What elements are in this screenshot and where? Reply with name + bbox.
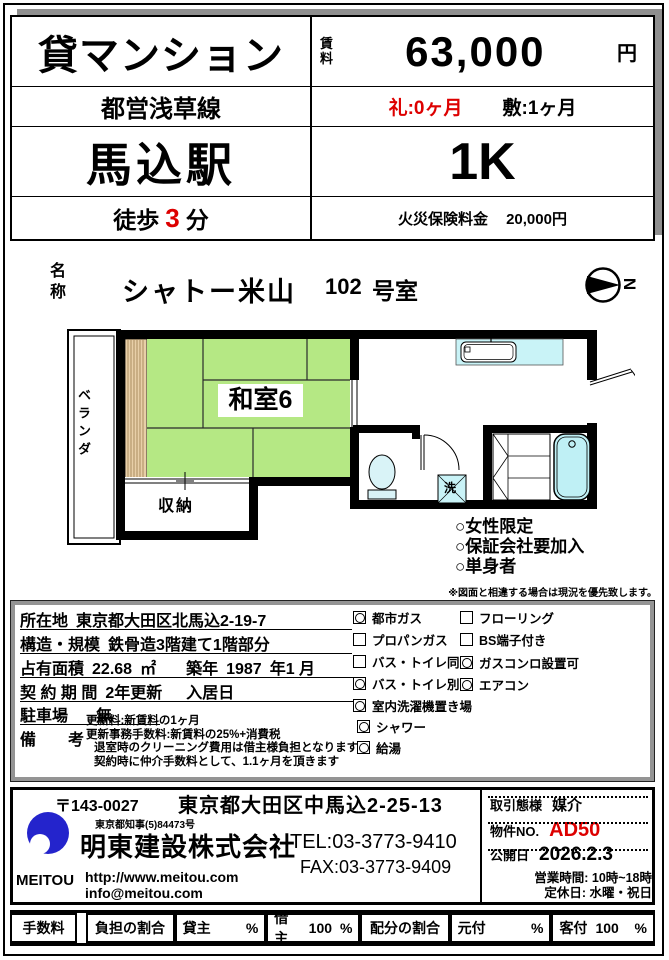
allocation-ratio-cell: 配分の割合: [360, 913, 449, 943]
checkbox[interactable]: [460, 611, 473, 624]
feature-hot-water: 給湯: [357, 738, 401, 757]
checkbox[interactable]: [353, 611, 366, 624]
address-row: 所在地 東京都大田区北馬込2-19-7: [20, 607, 352, 630]
built-year: 1987: [218, 661, 262, 679]
fee-cell: 手数料: [10, 913, 77, 943]
area-label: 占有面積: [20, 655, 84, 679]
listing-label: 元付: [458, 918, 486, 938]
key-money: 礼:0ヶ月: [389, 93, 463, 120]
header-box: 貸マンション 都営浅草線 馬込駅 徒歩 3 分 賃料 63,000 円 礼:0ヶ…: [10, 15, 655, 241]
note-guarantor: ○保証会社要加入: [455, 537, 584, 557]
company-logo: [24, 812, 70, 862]
company-box-divider: [480, 787, 482, 905]
tenant-label: 借主: [274, 908, 300, 948]
walk-minutes: 3: [159, 203, 185, 234]
remarks-label: 備 考: [20, 726, 84, 750]
built-label: 築年: [186, 655, 218, 679]
address-label: 所在地: [20, 607, 68, 631]
closet-label: 収納: [158, 492, 194, 516]
company-tel[interactable]: TEL:03-3773-9410: [290, 831, 457, 854]
dotted-divider: [488, 822, 648, 824]
company-name: 明東建設株式会社: [80, 827, 296, 864]
tenant-value: 100: [301, 920, 340, 936]
deposit-row: 礼:0ヶ月 敷:1ヶ月: [312, 87, 653, 127]
plan-disclaimer: ※図面と相違する場合は現況を優先致します。: [375, 584, 657, 599]
remark-line: 更新料:新賃料の1ヶ月: [86, 715, 358, 729]
percent-sign: %: [635, 920, 647, 936]
checkbox[interactable]: [460, 633, 473, 646]
company-fax: FAX:03-3773-9409: [300, 857, 451, 878]
landlord-cell: 貸主 %: [175, 913, 267, 943]
logo-text: MEITOU: [16, 872, 74, 889]
area-value: 22.68: [84, 661, 132, 679]
fire-insurance-value: 20,000円: [506, 208, 567, 229]
area-built-row: 占有面積 22.68 ㎡ 築年 1987 年1 月: [20, 655, 360, 678]
property-type-title: 貸マンション: [12, 17, 310, 87]
business-hours: 営業時間: 10時~18時 定休日: 水曜・祝日: [486, 871, 652, 901]
rent-label: 賃料: [320, 37, 334, 67]
remark-line: 更新事務手数料:新賃料の25%+消費税: [86, 729, 358, 743]
dotted-divider: [488, 796, 648, 798]
business-hours-value: 営業時間: 10時~18時: [486, 871, 652, 886]
client-label: 客付: [559, 918, 587, 938]
commission-strip: 手数料 負担の割合 貸主 % 借主 100 % 配分の割合 元付 % 客付 10…: [10, 910, 655, 946]
building-name: シャトー米山: [122, 270, 296, 309]
tatami-room-label: 和室6: [218, 384, 303, 417]
feature-air-conditioner: エアコン: [460, 675, 529, 694]
balcony-label: ベランダ: [74, 388, 93, 460]
feature-flooring: フローリング: [460, 608, 554, 627]
publish-date-label: 公開日: [490, 845, 529, 864]
built-month: 年1 月: [262, 655, 315, 679]
logo-white-circle: [30, 834, 50, 854]
checkbox[interactable]: [460, 678, 473, 691]
checkbox[interactable]: [353, 699, 366, 712]
burden-ratio-cell: 負担の割合: [86, 913, 175, 943]
walk-suffix: 分: [186, 201, 209, 235]
closed-days-value: 定休日: 水曜・祝日: [486, 886, 652, 901]
area-unit: ㎡: [132, 655, 156, 679]
feature-propane-gas: プロパンガス: [353, 630, 448, 649]
floor-plan-type: 1K: [312, 127, 653, 197]
toilet-door: [421, 435, 459, 470]
percent-sign: %: [246, 920, 258, 936]
publish-date-value: 2026.2.3: [539, 844, 613, 866]
fire-insurance-row: 火災保険料金 20,000円: [312, 197, 653, 239]
structure-label: 構造・規模: [20, 631, 100, 655]
listing-agent-cell: 元付 %: [450, 913, 552, 943]
remark-line: 契約時に仲介手数料として、1.1ヶ月を頂きます: [94, 756, 358, 770]
contract-row: 契 約 期 間 2年更新 入居日: [20, 679, 360, 702]
rent-row: 賃料 63,000 円: [312, 17, 653, 87]
train-line: 都営浅草線: [12, 87, 310, 127]
movein-label: 入居日: [186, 679, 234, 703]
bathroom: [493, 434, 590, 500]
company-website[interactable]: http://www.meitou.com: [85, 869, 238, 885]
feature-gas-stove-ok: ガスコンロ設置可: [460, 653, 579, 672]
structure-row: 構造・規模 鉄骨造3階建て1階部分: [20, 631, 352, 654]
checkbox[interactable]: [357, 720, 370, 733]
feature-city-gas: 都市ガス: [353, 608, 422, 627]
checkbox[interactable]: [357, 741, 370, 754]
fire-insurance-label: 火災保険料金: [398, 208, 488, 229]
room-number-suffix: 号室: [372, 272, 418, 306]
sliding-door: [352, 380, 357, 427]
room-number: 102: [325, 274, 362, 300]
flyer-page: 貸マンション 都営浅草線 馬込駅 徒歩 3 分 賃料 63,000 円 礼:0ヶ…: [0, 0, 669, 960]
rent-unit: 円: [617, 37, 653, 66]
walk-prefix: 徒歩: [113, 201, 159, 235]
deposit: 敷:1ヶ月: [503, 93, 577, 120]
name-label: 名称: [50, 262, 68, 304]
condition-notes: ○女性限定 ○保証会社要加入 ○単身者: [455, 517, 584, 577]
company-address: 東京都大田区中馬込2-25-13: [178, 789, 443, 818]
company-email[interactable]: info@meitou.com: [85, 885, 203, 901]
contract-value: 2年更新: [97, 679, 162, 703]
header-left-column: 貸マンション 都営浅草線 馬込駅 徒歩 3 分: [12, 17, 312, 239]
publish-date-row: 公開日 2026.2.3: [490, 844, 650, 866]
structure-value: 鉄骨造3階建て1階部分: [100, 631, 270, 655]
feature-bath-toilet-separate: バス・トイレ別: [353, 674, 460, 693]
dotted-divider: [488, 849, 648, 851]
client-value: 100: [587, 920, 626, 936]
remark-line: 退室時のクリーニング費用は借主様負担となります: [94, 742, 358, 756]
feature-bath-toilet-same: バス・トイレ同: [353, 652, 460, 671]
parking-label: 駐車場: [20, 702, 68, 726]
station-name: 馬込駅: [12, 127, 310, 197]
tenant-cell: 借主 100 %: [266, 913, 360, 943]
percent-sign: %: [340, 920, 352, 936]
walk-info: 徒歩 3 分: [12, 197, 310, 239]
remarks-text: 更新料:新賃料の1ヶ月 更新事務手数料:新賃料の25%+消費税 退室時のクリーニ…: [86, 715, 358, 769]
header-right-column: 賃料 63,000 円 礼:0ヶ月 敷:1ヶ月 1K 火災保険料金 20,000…: [312, 17, 653, 239]
toilet: [368, 455, 396, 499]
contract-label: 契 約 期 間: [20, 679, 97, 703]
checkbox[interactable]: [353, 677, 366, 690]
landlord-label: 貸主: [183, 918, 211, 938]
checkbox[interactable]: [353, 633, 366, 646]
feature-bs-terminal: BS端子付き: [460, 630, 546, 649]
client-agent-cell: 客付 100 %: [551, 913, 655, 943]
note-women-only: ○女性限定: [455, 517, 584, 537]
checkbox[interactable]: [460, 656, 473, 669]
checkbox[interactable]: [353, 655, 366, 668]
percent-sign: %: [531, 920, 543, 936]
washer-label: 洗: [444, 479, 456, 496]
feature-indoor-washer: 室内洗濯機置き場: [353, 696, 472, 715]
rent-value: 63,000: [334, 28, 617, 76]
feature-shower: シャワー: [357, 717, 426, 736]
compass-north-letter: N: [619, 278, 639, 290]
address-value: 東京都大田区北馬込2-19-7: [68, 607, 266, 631]
note-single: ○単身者: [455, 557, 584, 577]
